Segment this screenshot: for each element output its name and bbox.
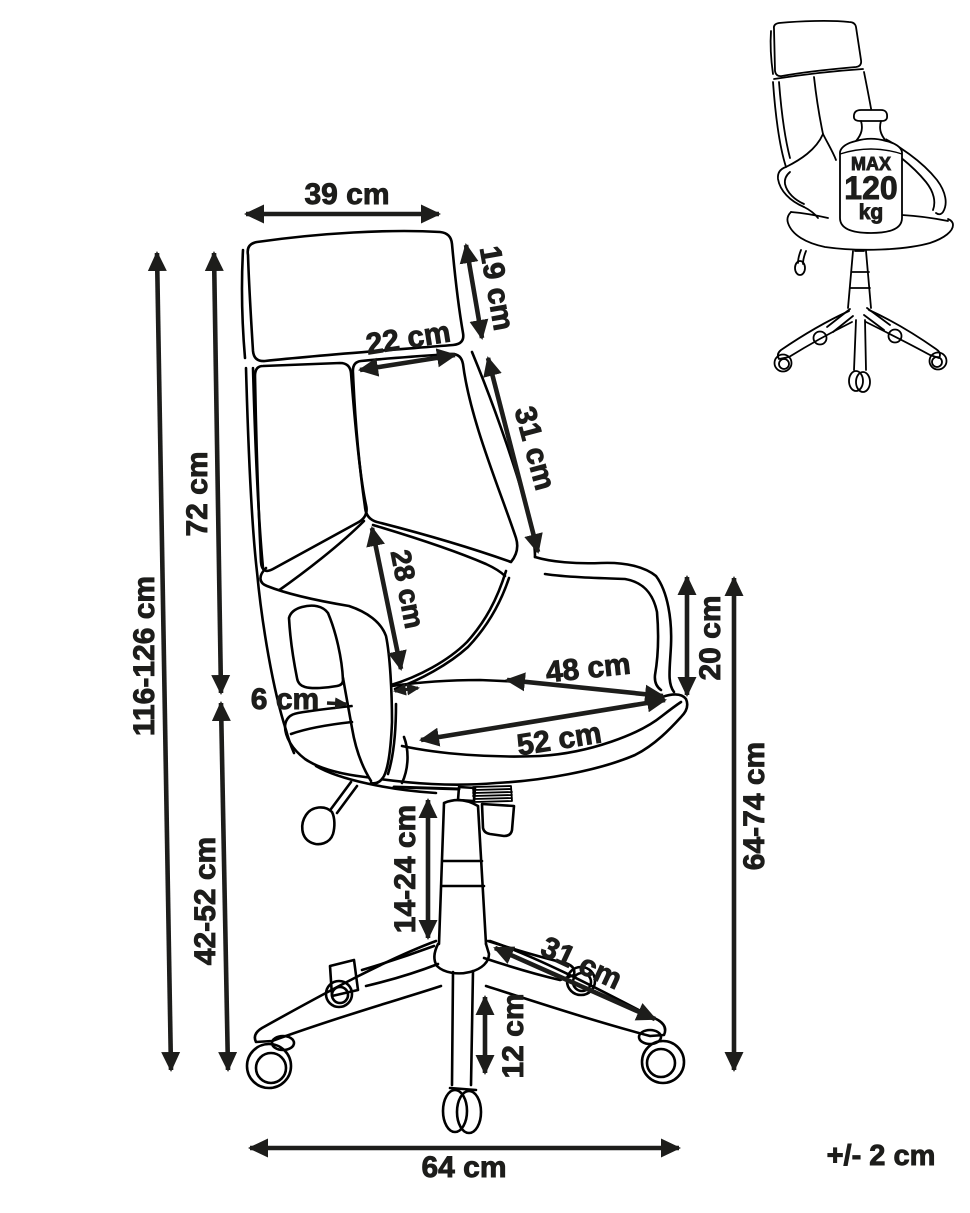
svg-text:39 cm: 39 cm bbox=[304, 178, 389, 211]
svg-text:72 cm: 72 cm bbox=[181, 451, 214, 536]
svg-text:12 cm: 12 cm bbox=[497, 993, 530, 1078]
svg-text:31 cm: 31 cm bbox=[508, 403, 562, 494]
svg-text:kg: kg bbox=[859, 201, 884, 224]
svg-text:14-24 cm: 14-24 cm bbox=[389, 805, 422, 933]
svg-text:116-126 cm: 116-126 cm bbox=[128, 576, 161, 736]
svg-text:6 cm: 6 cm bbox=[251, 683, 319, 716]
svg-text:64 cm: 64 cm bbox=[421, 1151, 506, 1184]
svg-text:64-74 cm: 64-74 cm bbox=[738, 742, 771, 870]
svg-text:+/- 2 cm: +/- 2 cm bbox=[827, 1140, 936, 1172]
svg-text:48 cm: 48 cm bbox=[544, 648, 632, 690]
svg-text:20 cm: 20 cm bbox=[694, 595, 727, 680]
svg-text:42-52 cm: 42-52 cm bbox=[189, 837, 222, 965]
